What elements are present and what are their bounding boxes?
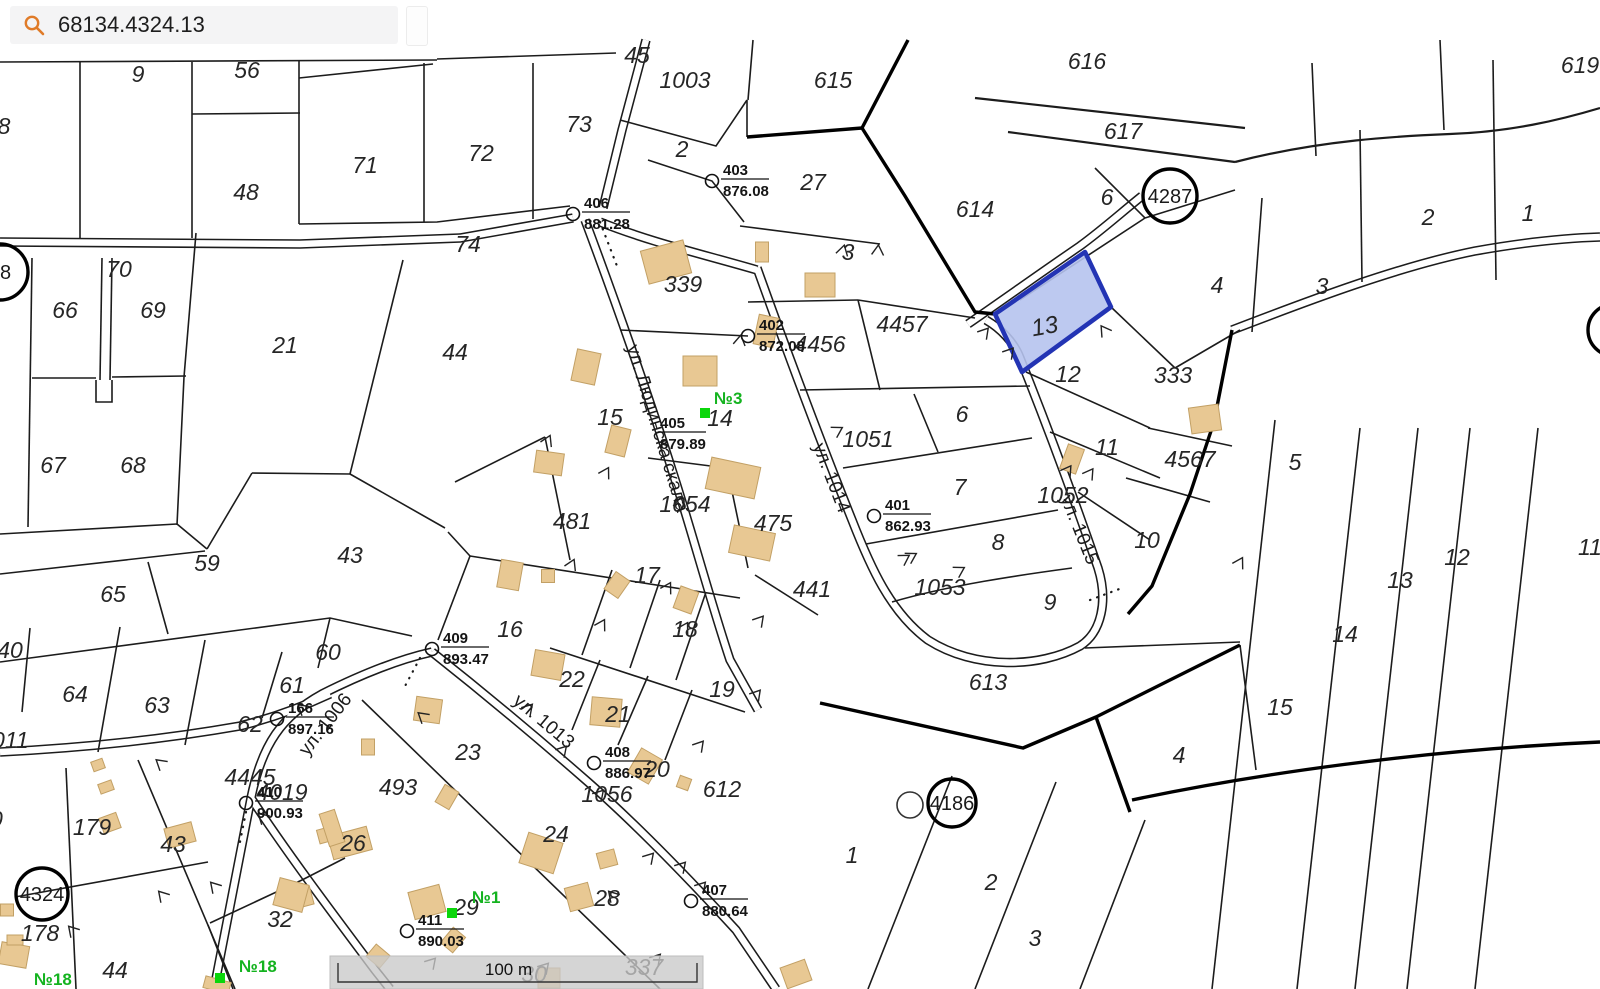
survey-point-number: 401	[885, 497, 910, 514]
survey-point-elevation: 876.08	[723, 183, 769, 200]
parcel-label: 56	[234, 57, 260, 83]
parcel-label: 3	[1029, 925, 1042, 951]
search-input[interactable]	[56, 11, 380, 39]
address-label: №18	[34, 970, 72, 989]
parcel-label: 18	[672, 616, 698, 642]
survey-point-number: 410	[257, 784, 282, 801]
parcel-label: 2	[675, 136, 689, 162]
parcel-label: 67	[40, 452, 67, 478]
address-label: №1	[472, 888, 500, 907]
parcel-label: 619	[1561, 52, 1600, 78]
parcel-label: 339	[664, 271, 703, 297]
parcel-label: 43	[337, 542, 363, 568]
parcel-label: 14	[707, 405, 733, 431]
parcel-label: 11	[1578, 534, 1600, 560]
parcel-label: 60	[315, 639, 341, 665]
survey-point-elevation: 897.16	[288, 721, 334, 738]
address-label: №18	[239, 957, 277, 976]
parcel-label: 614	[956, 196, 994, 222]
search-icon[interactable]	[22, 13, 46, 37]
building	[1188, 404, 1221, 434]
parcel-label: 48	[233, 179, 259, 205]
parcel-label: 21	[271, 332, 298, 358]
survey-point-number: 406	[584, 195, 609, 212]
parcel-label: 615	[814, 67, 853, 93]
parcel-label: 4	[1173, 742, 1186, 768]
building	[805, 273, 835, 297]
survey-point-number: 407	[702, 882, 727, 899]
parcel-label: 13	[1387, 567, 1413, 593]
parcel-label: 481	[553, 508, 591, 534]
parcel-label: 72	[468, 140, 494, 166]
region-circle-label: 4186	[930, 793, 975, 815]
parcel-label: 19	[709, 676, 735, 702]
parcel-label: 441	[793, 576, 831, 602]
parcel-label: 11	[1095, 434, 1119, 460]
parcel-label: 16	[497, 616, 523, 642]
parcel-label: 12	[1444, 544, 1470, 570]
highlighted-parcel-label: 13	[1029, 311, 1061, 342]
region-circle-label: 4324	[20, 884, 65, 906]
parcel-label: 44	[442, 339, 468, 365]
cadastral-map-app: 1389564871727374451003261527333961661766…	[0, 0, 1600, 989]
survey-point-number: 409	[443, 630, 468, 647]
building	[542, 570, 555, 583]
survey-point-elevation: 880.64	[702, 903, 749, 920]
parcel-label: 23	[454, 739, 481, 765]
survey-point-elevation: 893.47	[443, 651, 489, 668]
survey-point-elevation: 879.89	[660, 436, 706, 453]
parcel-label: 4457	[876, 311, 928, 337]
parcel-label: 1053	[914, 574, 965, 600]
parcel-label: 475	[754, 510, 793, 536]
parcel-label: 15	[1267, 694, 1293, 720]
parcel-label: 74	[455, 231, 481, 257]
survey-point-number: 411	[418, 912, 442, 929]
parcel-label: 4567	[1164, 446, 1216, 472]
survey-point-elevation: 881.28	[584, 216, 630, 233]
address-marker-icon	[215, 973, 225, 983]
parcel-label: 3	[842, 239, 855, 265]
parcel-label: 59	[194, 550, 220, 576]
parcel-label: 613	[969, 669, 1008, 695]
address-label: №3	[714, 389, 742, 408]
parcel-label: 1	[846, 842, 859, 868]
parcel-label: 616	[1068, 48, 1107, 74]
parcel-label: 333	[1154, 362, 1193, 388]
parcel-boundary	[112, 376, 186, 377]
survey-point-number: 166	[288, 700, 313, 717]
parcel-label: 71	[352, 152, 378, 178]
survey-point-number: 408	[605, 744, 630, 761]
parcel-label: 63	[144, 692, 170, 718]
parcel-label: 27	[799, 169, 827, 195]
parcel-label: 64	[62, 681, 88, 707]
region-circle-label: 4287	[1148, 186, 1193, 208]
parcel-label: 1056	[581, 781, 632, 807]
parcel-label: 40	[0, 806, 3, 832]
parcel-label: 1011	[0, 727, 29, 753]
parcel-label: 44	[102, 957, 128, 983]
parcel-label: 22	[558, 666, 585, 692]
parcel-label: 8	[0, 113, 11, 139]
parcel-label: 612	[703, 776, 742, 802]
parcel-label: 2	[984, 869, 998, 895]
point-circle	[897, 792, 923, 818]
parcel-label: 17	[634, 562, 661, 588]
address-marker-icon	[700, 408, 710, 418]
parcel-label: 1051	[842, 426, 893, 452]
parcel-label: 7	[954, 474, 968, 500]
address-marker-icon	[447, 908, 457, 918]
map-canvas[interactable]: 1389564871727374451003261527333961661766…	[0, 0, 1600, 989]
parcel-label: 68	[120, 452, 146, 478]
survey-point-number: 405	[660, 415, 685, 432]
toolbar-side-button[interactable]	[406, 6, 428, 46]
parcel-label: 2	[1421, 204, 1435, 230]
parcel-label: 10	[1134, 527, 1160, 553]
parcel-label: 26	[339, 830, 366, 856]
survey-point-elevation: 862.93	[885, 518, 931, 535]
parcel-label: 70	[106, 256, 132, 282]
building	[497, 559, 524, 590]
parcel-label: 8	[992, 529, 1005, 555]
building	[413, 696, 442, 723]
parcel-boundary	[192, 113, 300, 114]
building	[683, 356, 717, 386]
survey-point-elevation: 872.08	[759, 338, 805, 355]
building	[362, 739, 375, 755]
parcel-label: 69	[140, 297, 166, 323]
building	[756, 242, 769, 262]
building	[534, 450, 565, 476]
parcel-label: 21	[604, 701, 631, 727]
survey-point-elevation: 886.97	[605, 765, 651, 782]
parcel-label: 5	[1289, 449, 1302, 475]
parcel-label: 14	[1332, 621, 1358, 647]
region-circle-label: 88	[0, 262, 11, 284]
parcel-label: 15	[597, 404, 623, 430]
building	[1, 904, 14, 916]
parcel-label: 73	[566, 111, 592, 137]
parcel-label: 1003	[659, 67, 710, 93]
parcel-label: 32	[267, 906, 293, 932]
parcel-label: 1	[1522, 200, 1535, 226]
parcel-label: 43	[160, 831, 186, 857]
parcel-label: 61	[279, 672, 305, 698]
scalebar-label: 100 m	[485, 960, 532, 979]
parcel-label: 9	[1044, 589, 1057, 615]
survey-point-number: 402	[759, 317, 784, 334]
parcel-label: 40	[0, 637, 23, 663]
parcel-label: 9	[132, 61, 145, 87]
search-box[interactable]	[10, 6, 398, 44]
parcel-label: 65	[100, 581, 126, 607]
parcel-label: 3	[1316, 273, 1329, 299]
survey-point-number: 403	[723, 162, 748, 179]
parcel-label: 6	[956, 401, 969, 427]
parcel-label: 28	[593, 885, 620, 911]
parcel-label: 178	[21, 920, 60, 946]
parcel-label: 66	[52, 297, 78, 323]
parcel-boundary	[252, 473, 350, 474]
parcel-label: 6	[1101, 184, 1114, 210]
toolbar	[0, 0, 1600, 48]
survey-point-elevation: 900.93	[257, 805, 303, 822]
survey-point-elevation: 890.03	[418, 933, 464, 950]
parcel-label: 617	[1104, 118, 1144, 144]
parcel-label: 62	[237, 711, 263, 737]
parcel-label: 12	[1055, 361, 1081, 387]
parcel-label: 493	[379, 774, 418, 800]
parcel-label: 4	[1211, 272, 1224, 298]
parcel-label: 24	[542, 821, 569, 847]
parcel-label: 179	[73, 814, 112, 840]
